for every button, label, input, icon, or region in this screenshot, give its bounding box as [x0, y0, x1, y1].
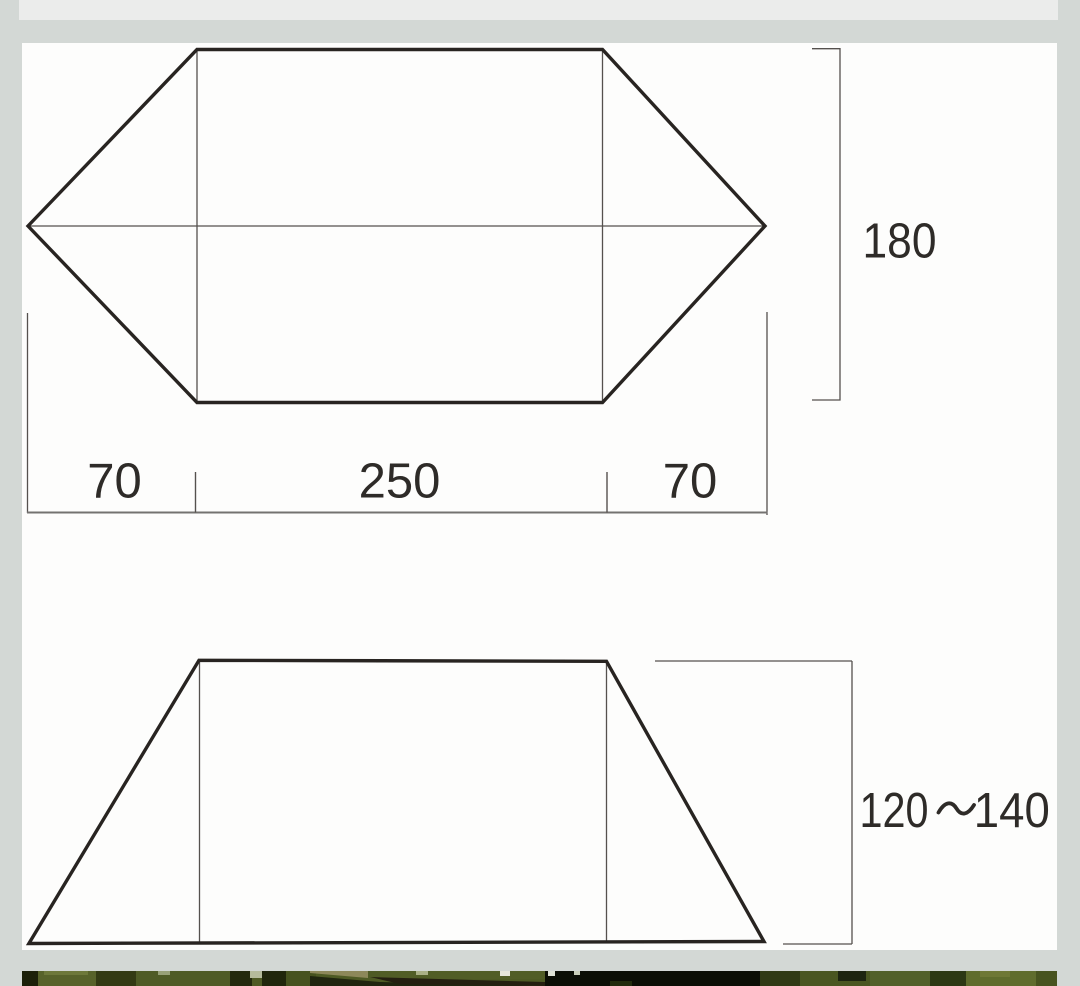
svg-text:70: 70 — [663, 455, 718, 509]
svg-text:140: 140 — [974, 784, 1050, 838]
svg-text:120: 120 — [860, 784, 929, 838]
svg-text:180: 180 — [863, 215, 937, 269]
svg-text:250: 250 — [359, 455, 441, 509]
svg-text:70: 70 — [87, 455, 142, 509]
